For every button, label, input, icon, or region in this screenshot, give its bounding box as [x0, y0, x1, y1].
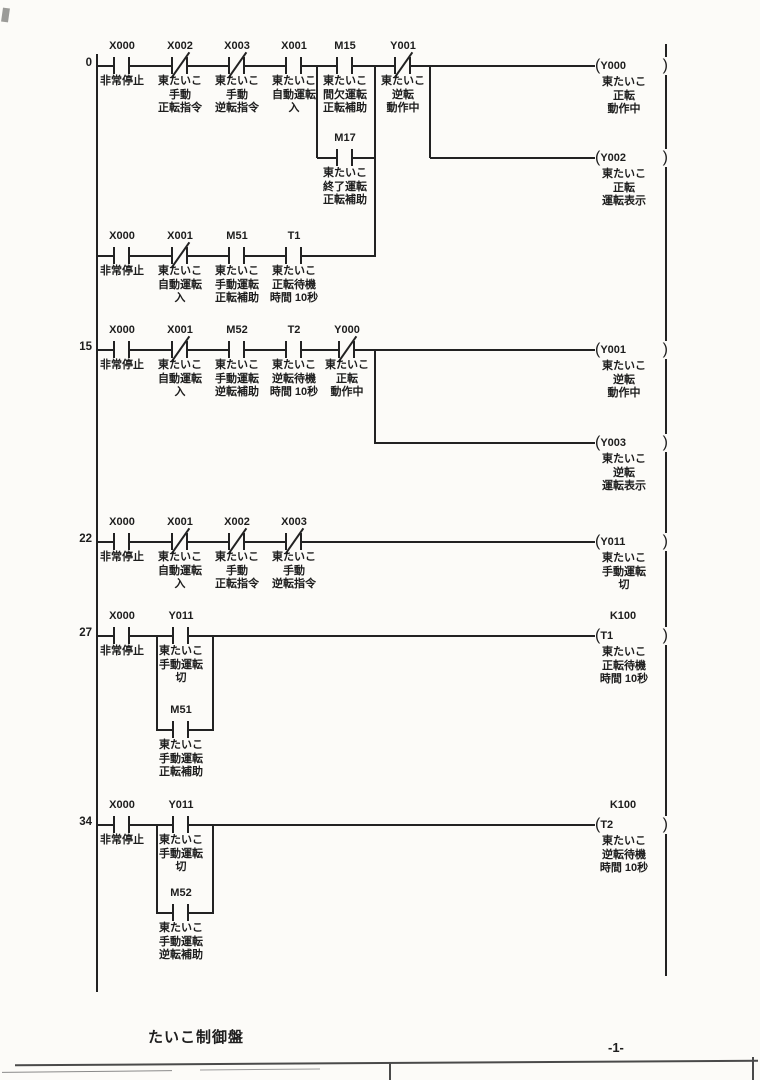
contact-label: 非常停止 — [100, 834, 144, 848]
contact-no — [113, 57, 130, 74]
contact-label: 東たいこ 手動運転 切 — [159, 834, 203, 875]
rung-number-15: 15 — [58, 341, 92, 353]
contact-no — [285, 341, 302, 358]
panel-title: たいこ制御盤 — [148, 1026, 244, 1047]
y002-branch-vertical — [429, 65, 431, 158]
coil-close-paren: ) — [663, 629, 668, 643]
coil-label: 東たいこ 手動運転 切 — [602, 552, 646, 593]
coil-device: T2 — [600, 819, 613, 831]
y003-branch-vertical — [374, 349, 376, 444]
rung-34-parallel-right-wire — [212, 824, 214, 914]
coil-device: Y002 — [600, 152, 626, 164]
coil-close-paren: ) — [663, 535, 668, 549]
contact-no — [113, 533, 130, 550]
timer-preset-T2: K100 — [597, 799, 649, 811]
contact-device: T1 — [288, 230, 301, 242]
rung-27-parallel-left-wire — [156, 635, 158, 731]
coil-Y011: (Y011) — [595, 533, 668, 551]
contact-device: Y001 — [390, 40, 416, 52]
timer-preset-T1: K100 — [597, 610, 649, 622]
scan-page-edge-line — [15, 1060, 758, 1067]
y003-branch-wire — [375, 442, 600, 444]
contact-no — [113, 627, 130, 644]
contact-label: 東たいこ 逆転待機 時間 10秒 — [270, 359, 318, 400]
contact-device: X002 — [224, 516, 250, 528]
contact-label: 東たいこ 手動 逆転指令 — [272, 551, 316, 592]
coil-T1: (T1) — [595, 627, 668, 645]
contact-device: X001 — [281, 40, 307, 52]
coil-Y002: (Y002) — [595, 149, 668, 167]
contact-label: 東たいこ 逆転 動作中 — [381, 75, 425, 116]
contact-label: 非常停止 — [100, 645, 144, 659]
contact-no — [113, 816, 130, 833]
contact-device: X001 — [167, 324, 193, 336]
contact-no — [336, 57, 353, 74]
contact-label: 東たいこ 自動運転 入 — [158, 265, 202, 306]
contact-no — [285, 57, 302, 74]
rung-number-0: 0 — [58, 57, 92, 69]
left-power-rail — [96, 54, 98, 992]
coil-label: 東たいこ 逆転 動作中 — [602, 360, 646, 401]
contact-device: X001 — [167, 516, 193, 528]
coil-T2: (T2) — [595, 816, 668, 834]
contact-label: 東たいこ 手動 逆転指令 — [215, 75, 259, 116]
contact-nc — [171, 247, 188, 264]
contact-nc — [338, 341, 355, 358]
contact-label: 非常停止 — [100, 551, 144, 565]
contact-label: 非常停止 — [100, 359, 144, 373]
scan-edge-shadow — [2, 1070, 172, 1073]
contact-label: 東たいこ 自動運転 入 — [272, 75, 316, 116]
rung-number-22: 22 — [58, 533, 92, 545]
coil-device: Y000 — [600, 60, 626, 72]
contact-no — [228, 247, 245, 264]
coil-close-paren: ) — [663, 343, 668, 357]
contact-label: 東たいこ 終了運転 正転補助 — [323, 167, 367, 208]
contact-device: X000 — [109, 516, 135, 528]
rung-number-27: 27 — [58, 627, 92, 639]
contact-nc — [228, 57, 245, 74]
contact-device: X000 — [109, 610, 135, 622]
scan-vertical-mark — [389, 1063, 391, 1080]
contact-no — [228, 341, 245, 358]
right-power-rail — [665, 44, 667, 976]
contact-device: X000 — [109, 324, 135, 336]
contact-label: 東たいこ 手動 正転指令 — [158, 75, 202, 116]
contact-label: 東たいこ 手動運転 切 — [159, 645, 203, 686]
contact-no — [336, 149, 353, 166]
coil-close-paren: ) — [663, 151, 668, 165]
contact-nc — [171, 341, 188, 358]
coil-device: T1 — [600, 630, 613, 642]
contact-device: X002 — [167, 40, 193, 52]
coil-label: 東たいこ 正転 動作中 — [602, 76, 646, 117]
contact-no — [172, 816, 189, 833]
coil-device: Y011 — [600, 536, 625, 548]
contact-label: 東たいこ 間欠運転 正転補助 — [323, 75, 367, 116]
rung-number-34: 34 — [58, 816, 92, 828]
contact-device: X000 — [109, 799, 135, 811]
contact-device: M51 — [170, 704, 191, 716]
page-number: -1- — [608, 1040, 624, 1055]
contact-label: 東たいこ 自動運転 入 — [158, 359, 202, 400]
contact-nc — [171, 533, 188, 550]
contact-device: M51 — [226, 230, 247, 242]
scan-corner-smudge — [1, 8, 10, 23]
contact-device: X000 — [109, 230, 135, 242]
contact-label: 東たいこ 手動運転 正転補助 — [159, 739, 203, 780]
contact-label: 非常停止 — [100, 75, 144, 89]
contact-device: Y011 — [168, 799, 193, 811]
contact-device: M15 — [334, 40, 355, 52]
contact-device: X001 — [167, 230, 193, 242]
contact-device: M52 — [226, 324, 247, 336]
contact-label: 東たいこ 正転待機 時間 10秒 — [270, 265, 318, 306]
contact-device: X003 — [224, 40, 250, 52]
contact-label: 非常停止 — [100, 265, 144, 279]
coil-close-paren: ) — [663, 818, 668, 832]
coil-Y000: (Y000) — [595, 57, 668, 75]
coil-label: 東たいこ 逆転待機 時間 10秒 — [600, 835, 648, 876]
coil-label: 東たいこ 正転待機 時間 10秒 — [600, 646, 648, 687]
contact-label: 東たいこ 手動運転 逆転補助 — [159, 922, 203, 963]
contact-nc — [285, 533, 302, 550]
contact-no — [172, 904, 189, 921]
contact-device: M52 — [170, 887, 191, 899]
contact-device: T2 — [288, 324, 301, 336]
contact-no — [113, 341, 130, 358]
contact-nc — [228, 533, 245, 550]
coil-device: Y003 — [600, 437, 626, 449]
contact-nc — [171, 57, 188, 74]
rung-27-parallel-right-wire — [212, 635, 214, 731]
contact-label: 東たいこ 手動運転 逆転補助 — [215, 359, 259, 400]
contact-label: 東たいこ 手動 正転指令 — [215, 551, 259, 592]
coil-close-paren: ) — [663, 59, 668, 73]
contact-device: X000 — [109, 40, 135, 52]
contact-device: Y011 — [168, 610, 193, 622]
contact-label: 東たいこ 正転 動作中 — [325, 359, 369, 400]
contact-no — [113, 247, 130, 264]
y002-branch-wire — [430, 157, 600, 159]
contact-no — [172, 627, 189, 644]
m15-parallel-right-wire — [374, 65, 376, 257]
coil-Y001: (Y001) — [595, 341, 668, 359]
scanned-ladder-diagram-page: 0 15 22 27 34 X000 非常停止 X002 東たいこ 手動 正転指… — [0, 0, 760, 1080]
contact-label: 東たいこ 自動運転 入 — [158, 551, 202, 592]
scan-edge-shadow — [200, 1068, 320, 1070]
coil-close-paren: ) — [663, 436, 668, 450]
contact-device: X003 — [281, 516, 307, 528]
coil-label: 東たいこ 正転 運転表示 — [602, 168, 646, 209]
contact-device: Y000 — [334, 324, 360, 336]
contact-no — [285, 247, 302, 264]
contact-label: 東たいこ 手動運転 正転補助 — [215, 265, 259, 306]
coil-Y003: (Y003) — [595, 434, 668, 452]
coil-device: Y001 — [600, 344, 626, 356]
contact-no — [172, 721, 189, 738]
coil-label: 東たいこ 逆転 運転表示 — [602, 453, 646, 494]
contact-device: M17 — [334, 132, 355, 144]
rung-34-parallel-left-wire — [156, 824, 158, 914]
contact-nc — [394, 57, 411, 74]
m15-parallel-left-wire — [316, 65, 318, 158]
scan-vertical-mark — [752, 1057, 754, 1080]
